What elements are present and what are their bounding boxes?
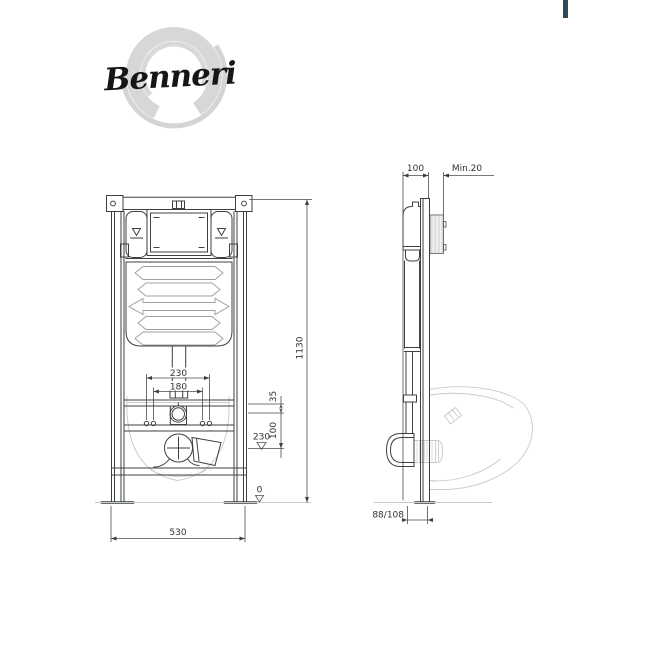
dim-230-spacing-label: 230	[170, 369, 187, 379]
dim-min20-label: Min.20	[452, 164, 483, 174]
flush-plate-housing	[430, 215, 446, 254]
dim-530-width-label: 530	[169, 528, 186, 538]
datum-triangle-icon	[256, 496, 264, 503]
dim-zero-label: 0	[257, 486, 263, 496]
frame-side	[387, 172, 447, 503]
front-view-drawing: 230 180 35 100 230 0 530 1130	[95, 196, 312, 543]
brand-name: Benneri	[102, 56, 237, 99]
water-level-icon	[131, 229, 228, 239]
accent-bar	[563, 0, 568, 18]
dim-1130-height-label: 1130	[296, 336, 306, 359]
dim-100-label: 100	[269, 422, 279, 439]
mount-hole-icon	[242, 201, 247, 206]
dimensions-front: 230 180 35 100 230 0 530 1130	[95, 200, 312, 543]
dim-depth-100-label: 100	[407, 164, 424, 174]
cistern-ribbons	[129, 267, 229, 346]
dim-180-spacing-label: 180	[170, 383, 187, 393]
frame-front	[102, 196, 256, 503]
dimensions-side: 100 Min.20 88/108	[372, 164, 494, 524]
brand-logo: Benneri	[102, 4, 245, 146]
dim-35-label: 35	[269, 391, 279, 402]
dim-230-level-label: 230	[253, 433, 270, 443]
mount-hole-icon	[111, 201, 116, 206]
side-view-drawing: 100 Min.20 88/108	[372, 164, 532, 524]
technical-drawing-canvas: Benneri	[0, 0, 650, 650]
dim-88-108-label: 88/108	[372, 511, 404, 521]
drain-outlet	[154, 434, 221, 467]
toilet-bowl-ghost-side	[414, 387, 532, 490]
